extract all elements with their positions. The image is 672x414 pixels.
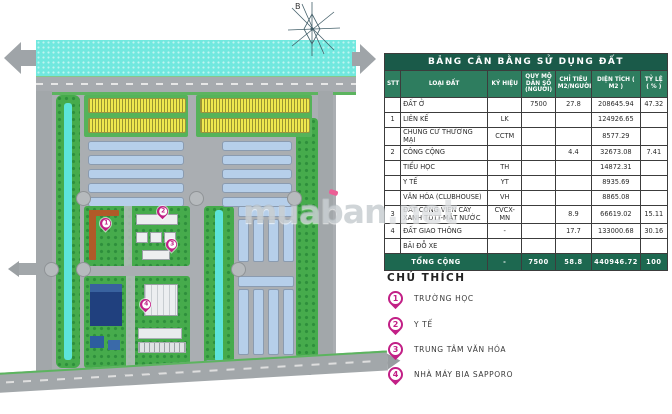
cell: CCTM — [488, 128, 522, 146]
cell: 8577.29 — [592, 128, 641, 146]
housing-bar — [238, 219, 249, 262]
warehouse-building — [138, 328, 182, 339]
cell: 30.16 — [640, 224, 667, 239]
lane-line — [36, 83, 356, 85]
housing-bar — [88, 169, 184, 179]
table-row: ĐẤT Ở 7500 27.8 208645.94 47.32 — [385, 98, 668, 113]
total-label: TỔNG CỘNG — [385, 254, 488, 271]
cell: VH — [488, 191, 522, 206]
cell — [522, 224, 555, 239]
table-title: BẢNG CÂN BẰNG SỬ DỤNG ĐẤT — [385, 54, 668, 71]
cell — [522, 128, 555, 146]
cell: 66619.02 — [592, 206, 641, 224]
road-arrow-left-shaft — [20, 50, 36, 66]
legend-item: 4 NHÀ MÁY BIA SAPPORO — [388, 367, 513, 389]
road-arrow-right-shaft — [352, 52, 361, 66]
yellow-house-row — [200, 118, 310, 133]
cell: 47.32 — [640, 98, 667, 113]
land-use-table: BẢNG CÂN BẰNG SỬ DỤNG ĐẤT STT LOẠI ĐẤT K… — [384, 53, 668, 271]
roundabout — [231, 262, 246, 277]
culture-building — [142, 250, 170, 260]
cell: ĐẤT CÔNG VIÊN CÂY XANH TDTT-MẶT NƯỚC — [401, 206, 488, 224]
green-canal-strip-left — [56, 95, 80, 368]
table-row: 4 ĐẤT GIAO THÔNG - 17.7 133000.68 30.16 — [385, 224, 668, 239]
roundabout — [76, 262, 91, 277]
cell: 3 — [385, 206, 401, 224]
legend-pin-number: 2 — [390, 319, 401, 330]
road-arrow-right-icon — [360, 44, 376, 74]
yellow-house-row — [88, 98, 186, 113]
legend-label: NHÀ MÁY BIA SAPPORO — [414, 367, 513, 379]
cell: ĐẤT GIAO THÔNG — [401, 224, 488, 239]
legend-pin-icon: 4 — [385, 364, 406, 385]
cell — [555, 176, 591, 191]
cell: CHUNG CƯ THƯƠNG MẠI — [401, 128, 488, 146]
factory-path — [126, 276, 135, 368]
green-canal-strip-middle — [204, 206, 234, 366]
roundabout — [76, 191, 91, 206]
col-header: DIỆN TÍCH ( M2 ) — [592, 71, 641, 98]
housing-bar — [253, 219, 264, 262]
cell — [385, 161, 401, 176]
yellow-house-row — [88, 118, 186, 133]
cell: - — [488, 224, 522, 239]
cell: YT — [488, 176, 522, 191]
legend-label: Y TẾ — [414, 317, 433, 329]
cell: 124926.65 — [592, 113, 641, 128]
housing-bar — [283, 289, 294, 355]
legend-pin-number: 3 — [390, 344, 401, 355]
cell: LIÊN KẾ — [401, 113, 488, 128]
table-row: 2 CÔNG CỘNG 4.4 32673.08 7.41 — [385, 146, 668, 161]
cell: Y TẾ — [401, 176, 488, 191]
cell: TIỂU HỌC — [401, 161, 488, 176]
housing-bar — [283, 219, 294, 262]
col-header: CHỈ TIÊU M2/NGƯỜI — [555, 71, 591, 98]
cell: 15.11 — [640, 206, 667, 224]
green-strip-right — [296, 118, 318, 358]
blue-housing-group-left — [88, 141, 184, 207]
map-pin-number: 3 — [168, 241, 176, 249]
cell — [640, 176, 667, 191]
cell: 1 — [385, 113, 401, 128]
compass-north-label: B — [295, 2, 301, 11]
canal-middle — [215, 210, 223, 362]
table-header-row: STT LOẠI ĐẤT KÝ HIỆU QUY MÔ DÂN SỐ (NGƯỜ… — [385, 71, 668, 98]
cell: 27.8 — [555, 98, 591, 113]
cell: CVCX-MN — [488, 206, 522, 224]
legend-pin-number: 1 — [390, 293, 401, 304]
cell: 7500 — [522, 98, 555, 113]
blue-housing-vertical-group-1 — [238, 219, 294, 262]
yellow-housing-block-right — [196, 95, 312, 137]
cell — [488, 98, 522, 113]
cell — [640, 239, 667, 254]
legend-label: TRUNG TÂM VĂN HÓA — [414, 342, 506, 354]
cell — [555, 113, 591, 128]
legend-pin-number: 4 — [390, 369, 401, 380]
cell: 208645.94 — [592, 98, 641, 113]
cell: TH — [488, 161, 522, 176]
legend-item: 2 Y TẾ — [388, 317, 433, 339]
cell: 17.7 — [555, 224, 591, 239]
cell — [555, 128, 591, 146]
park-block — [84, 206, 190, 266]
cell — [640, 113, 667, 128]
cell: 133000.68 — [592, 224, 641, 239]
cell — [385, 98, 401, 113]
table-row: TIỂU HỌC TH 14872.31 — [385, 161, 668, 176]
table-row: 3 ĐẤT CÔNG VIÊN CÂY XANH TDTT-MẶT NƯỚC C… — [385, 206, 668, 224]
cell: 440946.72 — [592, 254, 641, 271]
cell — [555, 161, 591, 176]
table-row: CHUNG CƯ THƯƠNG MẠI CCTM 8577.29 — [385, 128, 668, 146]
legend-pin-icon: 2 — [385, 314, 406, 335]
blue-housing-group-right — [222, 141, 292, 207]
housing-bar — [88, 155, 184, 165]
west-road-arrow-icon — [8, 261, 19, 277]
screenshot: 1 2 3 4 B muaban.net BẢNG CÂN BẰNG SỬ DỤ… — [0, 0, 672, 414]
cell: LK — [488, 113, 522, 128]
housing-bar — [222, 155, 292, 165]
cell — [592, 239, 641, 254]
map-pin-number: 4 — [142, 301, 150, 309]
cell — [385, 239, 401, 254]
cell — [488, 239, 522, 254]
factory-block — [84, 276, 190, 368]
table-total-row: TỔNG CỘNG - 7500 58.8 440946.72 100 — [385, 254, 668, 271]
compass-icon: B — [282, 0, 346, 58]
small-building — [150, 232, 162, 243]
col-header: LOẠI ĐẤT — [401, 71, 488, 98]
housing-bar — [238, 289, 249, 355]
cell: 14872.31 — [592, 161, 641, 176]
col-header: STT — [385, 71, 401, 98]
cell: 58.8 — [555, 254, 591, 271]
cell: 4.4 — [555, 146, 591, 161]
legend-pin-icon: 1 — [385, 288, 406, 309]
map-pin-number: 2 — [159, 208, 167, 216]
roundabout — [189, 191, 204, 206]
cell: 32673.08 — [592, 146, 641, 161]
housing-bar — [268, 219, 279, 262]
cell — [522, 191, 555, 206]
top-road — [36, 76, 356, 95]
cell: 8.9 — [555, 206, 591, 224]
housing-bar — [222, 141, 292, 151]
cell — [522, 206, 555, 224]
factory-main-building — [90, 284, 122, 326]
cell — [640, 191, 667, 206]
table-row: Y TẾ YT 8935.69 — [385, 176, 668, 191]
school-building — [89, 210, 96, 260]
col-header: QUY MÔ DÂN SỐ (NGƯỜI) — [522, 71, 555, 98]
clinic-building — [136, 214, 178, 225]
housing-bar — [238, 206, 294, 217]
cell — [385, 176, 401, 191]
legend-item: 1 TRƯỜNG HỌC — [388, 291, 474, 313]
cell: 8935.69 — [592, 176, 641, 191]
cell: - — [488, 254, 522, 271]
master-plan-map: 1 2 3 4 B — [0, 0, 380, 414]
cell: 7.41 — [640, 146, 667, 161]
small-building — [136, 232, 148, 243]
housing-bar — [238, 276, 294, 287]
cell — [522, 176, 555, 191]
cell: 4 — [385, 224, 401, 239]
left-road — [36, 91, 52, 383]
cell: CÔNG CỘNG — [401, 146, 488, 161]
road-arrow-left-icon — [4, 42, 21, 74]
cell — [640, 161, 667, 176]
housing-bar — [268, 289, 279, 355]
cell: 100 — [640, 254, 667, 271]
legend-pin-icon: 3 — [385, 339, 406, 360]
cell: 8865.08 — [592, 191, 641, 206]
cell — [555, 239, 591, 254]
table-row: BÃI ĐỖ XE — [385, 239, 668, 254]
cell — [640, 128, 667, 146]
housing-bar — [88, 183, 184, 193]
map-pin-number: 1 — [102, 220, 110, 228]
legend-label: TRƯỜNG HỌC — [414, 291, 474, 303]
table-row: VĂN HÓA (CLUBHOUSE) VH 8865.08 — [385, 191, 668, 206]
cell — [488, 146, 522, 161]
utility-building — [90, 336, 104, 348]
utility-building — [108, 340, 120, 350]
housing-bar — [88, 141, 184, 151]
yellow-housing-block-left — [84, 95, 188, 137]
cell — [385, 128, 401, 146]
factory-roof — [90, 284, 122, 292]
parking-row — [138, 342, 186, 353]
school-building — [89, 210, 119, 216]
cell: VĂN HÓA (CLUBHOUSE) — [401, 191, 488, 206]
legend-item: 3 TRUNG TÂM VĂN HÓA — [388, 342, 506, 364]
cell: 2 — [385, 146, 401, 161]
legend-title: CHÚ THÍCH — [387, 272, 466, 284]
table-row: 1 LIÊN KẾ LK 124926.65 — [385, 113, 668, 128]
roundabout — [287, 191, 302, 206]
cell — [522, 146, 555, 161]
right-road — [318, 91, 333, 357]
cell: BÃI ĐỖ XE — [401, 239, 488, 254]
housing-bar — [222, 169, 292, 179]
roundabout — [44, 262, 59, 277]
park-path — [124, 206, 132, 266]
cell — [385, 191, 401, 206]
col-header: KÝ HIỆU — [488, 71, 522, 98]
housing-bar — [253, 289, 264, 355]
cell: 7500 — [522, 254, 555, 271]
housing-bar — [222, 183, 292, 193]
cell — [555, 191, 591, 206]
canal-left — [64, 103, 72, 360]
cell — [522, 161, 555, 176]
blue-housing-vertical-group-2 — [238, 289, 294, 355]
cell — [522, 113, 555, 128]
col-header: TỶ LỆ ( % ) — [640, 71, 667, 98]
cell — [522, 239, 555, 254]
table-title-row: BẢNG CÂN BẰNG SỬ DỤNG ĐẤT — [385, 54, 668, 71]
cell: ĐẤT Ở — [401, 98, 488, 113]
yellow-house-row — [200, 98, 310, 113]
